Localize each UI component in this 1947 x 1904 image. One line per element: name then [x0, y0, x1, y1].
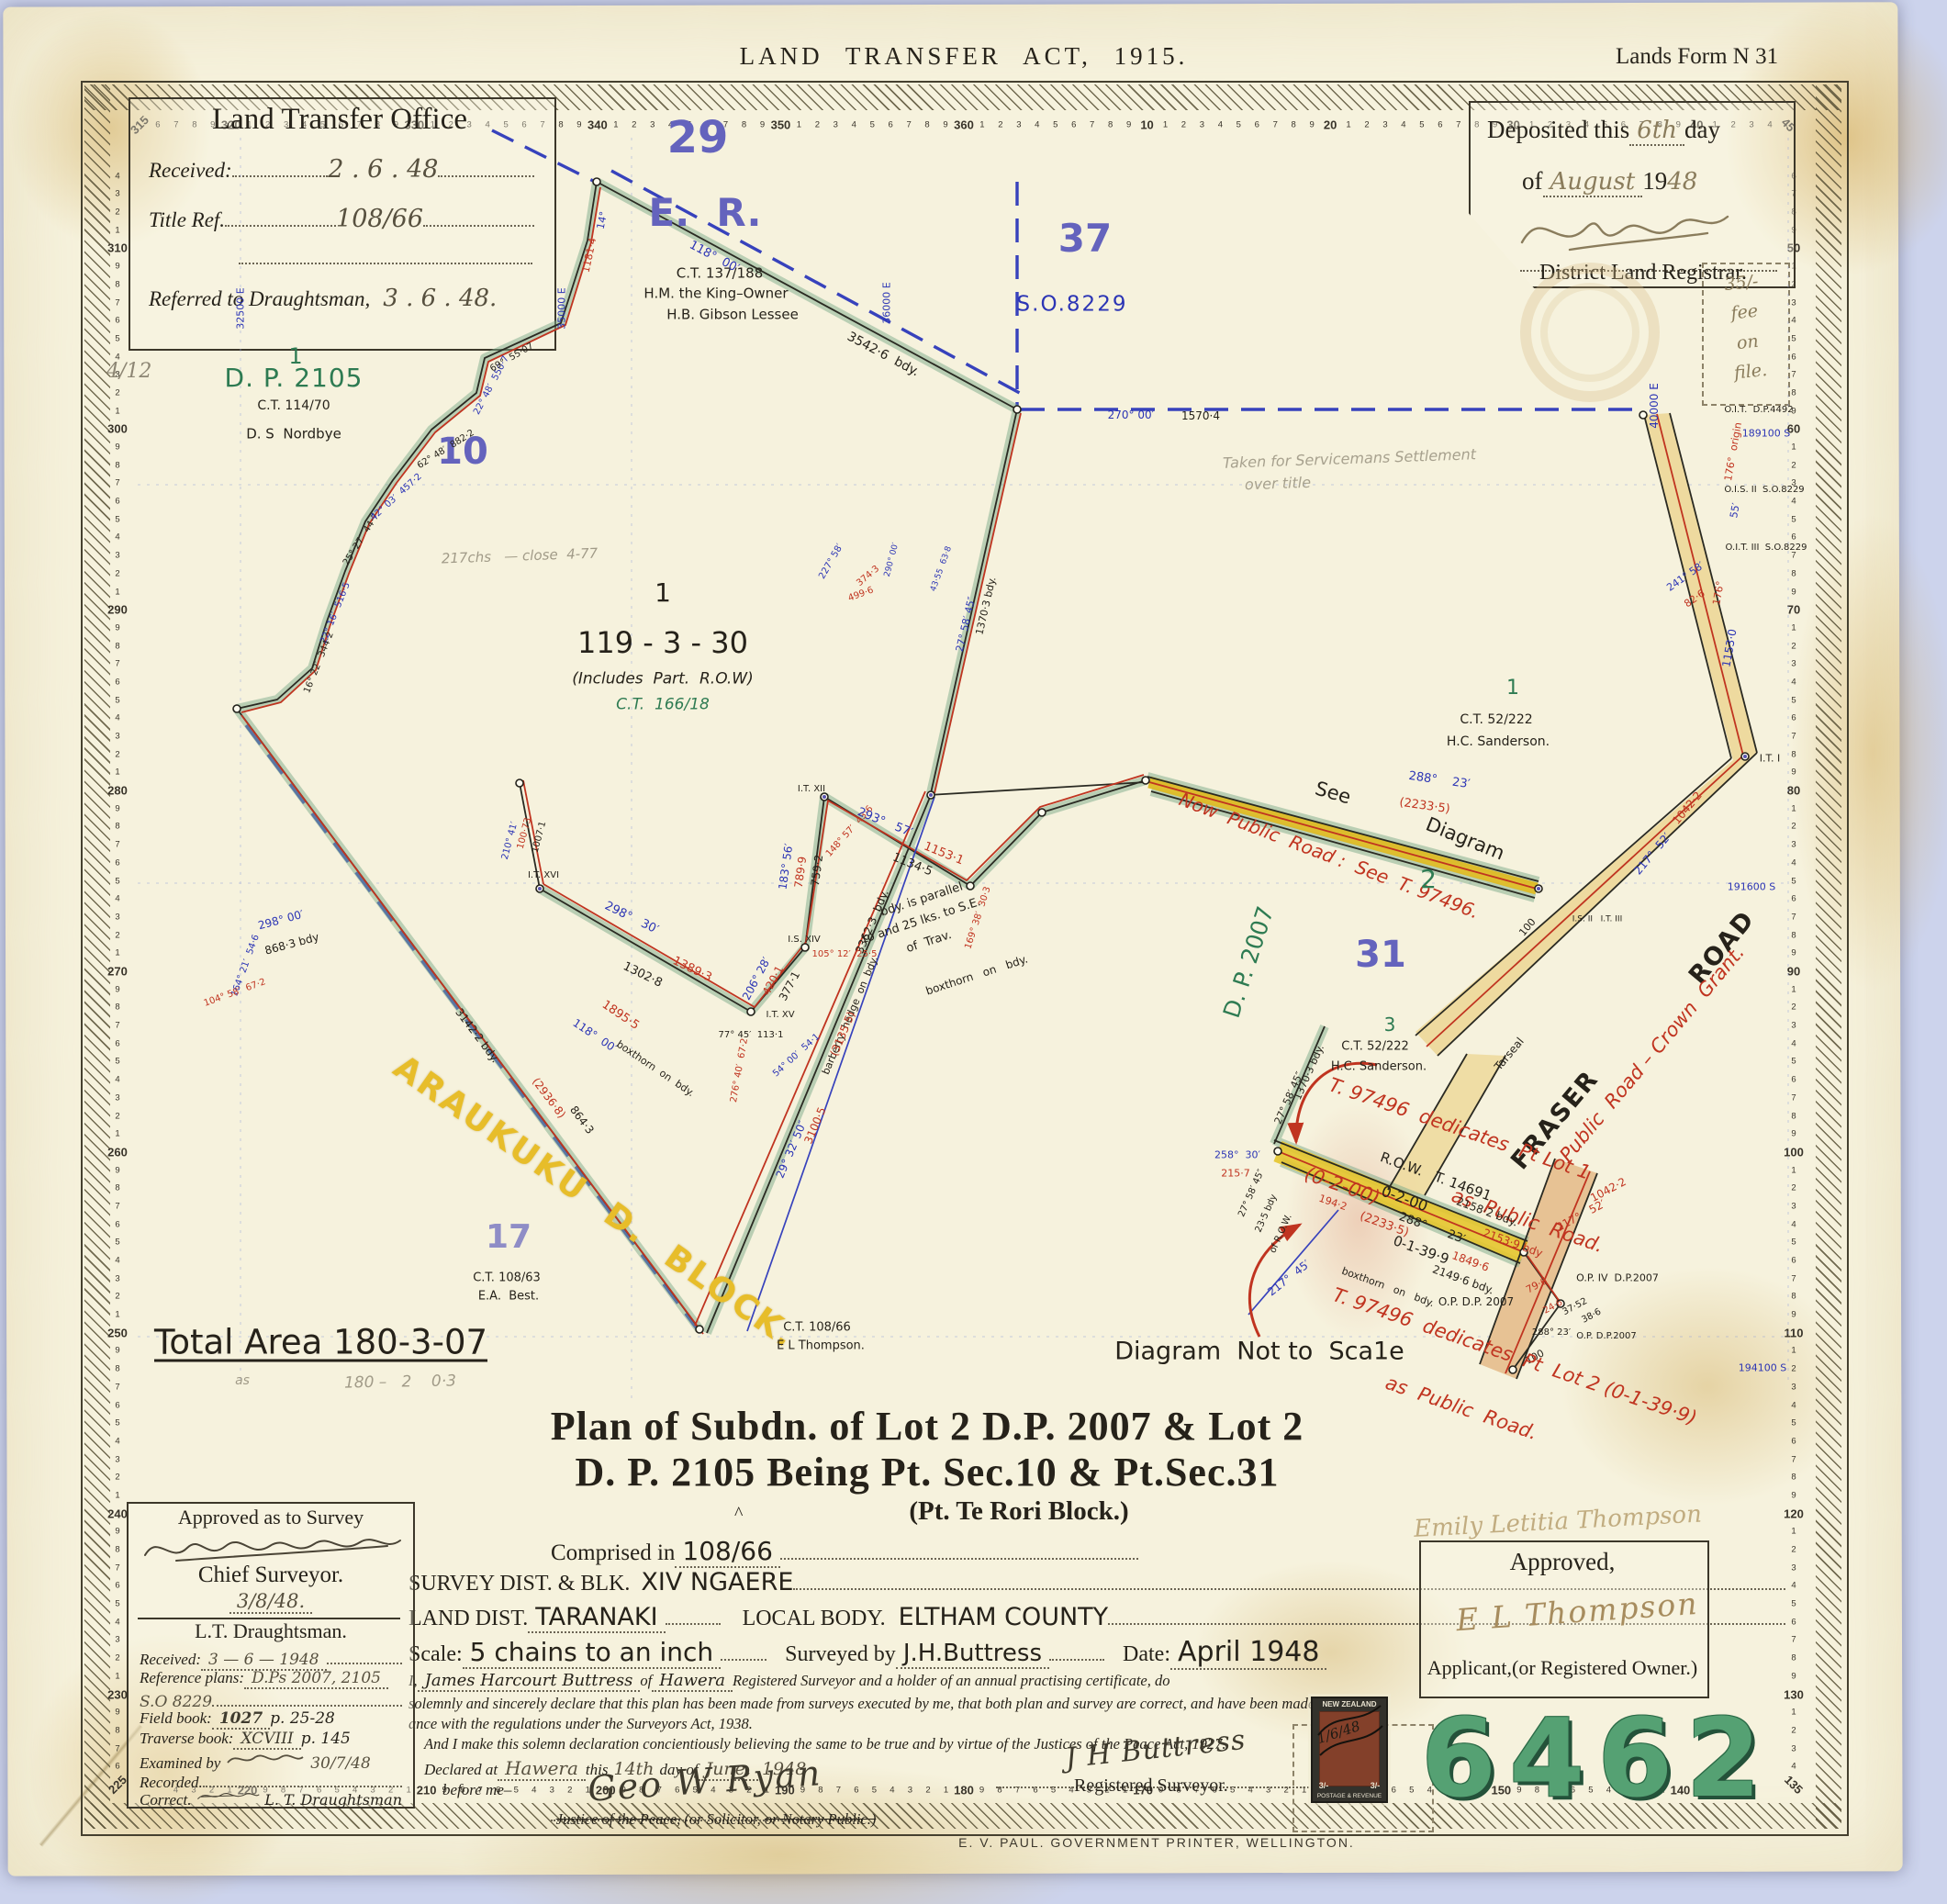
chief-surveyor-title: Chief Surveyor. — [138, 1562, 404, 1588]
comprised-value: 108/66 — [675, 1536, 780, 1568]
label-oit-iii: O.I.T. III S.O.8229 — [1726, 543, 1807, 553]
applicant-label: Applicant,(or Registered Owner.) — [1425, 1656, 1700, 1680]
label-s1-no: 1 — [1506, 678, 1519, 699]
label-isxiv: I.S. XIV — [788, 935, 820, 945]
scale-label: Scale: — [408, 1642, 463, 1667]
local-body-label: LOCAL BODY. — [721, 1607, 886, 1631]
jp-title-a: Justice of the Peace, — [556, 1810, 681, 1829]
label-sec31: 31 — [1355, 936, 1406, 973]
ltd-received: Received: 3 — 6 — 1948 — [140, 1647, 402, 1671]
label-s1-name: H.C. Sanderson. — [1447, 735, 1550, 748]
label-lot29-lessee: H.B. Gibson Lessee — [666, 308, 799, 322]
label-grid-36000e: 36000 E — [882, 282, 892, 323]
land-dist-value: TARANAKI — [528, 1603, 665, 1633]
ltd-correct: Correct. L. T. Draughtsman — [140, 1786, 402, 1809]
decl-post: Registered Surveyor and a holder of an a… — [733, 1672, 1169, 1690]
ltd-field-value: 1027 — [212, 1709, 270, 1730]
label-dp2105-ct: C.T. 114/70 — [257, 399, 330, 412]
label-d2-288-23: 288° 23′ — [1532, 1328, 1571, 1338]
label-pencil-settlement-2: over title — [1245, 476, 1312, 493]
label-ois-ii: O.I.S. II S.O.8229 — [1724, 486, 1804, 495]
label-pencil-total: 180 – 2 0·3 — [344, 1373, 456, 1391]
scanned-survey-plan: 3156789320123456789330123456789340123456… — [0, 0, 1947, 1904]
dotted-line — [327, 1647, 402, 1664]
ltd-ref-label: Reference plans: — [140, 1669, 244, 1687]
label-total-area: Total Area 180-3-07 — [154, 1326, 487, 1360]
chief-surveyor-signature — [140, 1528, 406, 1566]
dotted-line — [203, 1770, 402, 1787]
ltd-ref-plans: Reference plans: D.Ps 2007, 2105 — [140, 1669, 402, 1689]
label-77-45: 77° 45′ 113·1 — [719, 1031, 784, 1040]
label-lot1-incl: (Includes Part. R.O.W) — [572, 672, 753, 688]
label-ct10866: C.T. 108/66 — [783, 1322, 851, 1334]
ltd-correct-label: Correct. — [140, 1791, 192, 1809]
surveyor-title: Registered Surveyor. — [1074, 1775, 1228, 1797]
ltd-traverse-value: XCVIII — [233, 1730, 300, 1750]
declared-label: Declared at — [424, 1761, 498, 1779]
jp-title-c: or Notary Public.) — [765, 1810, 876, 1829]
label-dp2105-owner: D. S Nordbye — [246, 428, 341, 442]
label-sec17-owner: E.A. Best. — [478, 1291, 539, 1303]
ltd-field-book: Field book: 1027 p. 25-28 — [140, 1709, 402, 1730]
label-bdy-270-00: 270° 00′ — [1108, 409, 1155, 420]
label-sec37-so: S.O.8229 — [1017, 295, 1128, 316]
dotted-line — [212, 1689, 402, 1707]
label-s189100: 189100 S — [1742, 429, 1790, 439]
label-oit-dp4492: O.I.T. D.P.4492 — [1724, 406, 1793, 415]
label-diagram-note: Diagram Not to Sca1e — [1114, 1339, 1404, 1364]
ltd-traverse-book: Traverse book: XCVIII p. 145 — [140, 1730, 402, 1750]
ltd-field-label: Field book: — [140, 1709, 212, 1728]
decl-place: Hawera — [652, 1671, 733, 1692]
decl-of: of — [640, 1672, 652, 1690]
ltd-ref-value: D.Ps 2007, 2105 — [244, 1669, 388, 1689]
label-itxii: I.T. XII — [798, 785, 825, 794]
ltd-sign-title: L. T. Draughtsman — [264, 1791, 402, 1809]
printer-imprint: E. V. PAUL. GOVERNMENT PRINTER, WELLINGT… — [826, 1835, 1487, 1850]
approved-label: Approved, — [1428, 1548, 1696, 1576]
ltd-ref-value2: S.O 8229 — [140, 1693, 212, 1711]
land-dist-label: LAND DIST. — [408, 1607, 528, 1631]
label-lot1-ct: C.T. 166/18 — [616, 698, 710, 713]
dotted-line — [721, 1637, 766, 1661]
label-s3-name: H.C. Sanderson. — [1331, 1061, 1427, 1073]
survey-stations — [233, 178, 1749, 1373]
label-lot29-owner: H.M. the King–Owner — [643, 287, 788, 301]
label-s194100: 194100 S — [1739, 1363, 1786, 1373]
plan-number: 6462 — [1421, 1695, 1715, 1821]
label-itxvi: I.T. XVI — [528, 871, 559, 880]
ltd-ref-plans2: S.O 8229 — [140, 1689, 402, 1711]
label-d-258-30: 258° 30′ — [1214, 1150, 1260, 1160]
comprised-label: Comprised in — [551, 1540, 675, 1566]
label-isii-itiii: I.S. II I.T. III — [1572, 916, 1622, 924]
label-lot29-er: E. R. — [649, 194, 762, 232]
lt-draughtsman-title: L.T. Draughtsman. — [138, 1619, 404, 1643]
plan-title-line1: Plan of Subdn. of Lot 2 D.P. 2007 & Lot … — [386, 1403, 1469, 1450]
declaration-line2: solemnly and sincerely declare that this… — [408, 1695, 1391, 1713]
plan-title-line2: D. P. 2105 Being Pt. Sec.10 & Pt.Sec.31 — [386, 1449, 1469, 1495]
label-55: 55′ — [1729, 502, 1741, 519]
examiner-signature — [224, 1750, 307, 1768]
jp-title-b: (or Solicitor, — [684, 1810, 760, 1829]
ltd-traverse-pages: p. 145 — [301, 1730, 351, 1748]
label-d-215-7: 215·7 — [1221, 1169, 1250, 1179]
label-op2007a: O.P. D.P. 2007 — [1438, 1296, 1514, 1307]
label-elthompson-map: E L Thompson. — [777, 1340, 865, 1352]
decl-name: James Harcourt Buttress — [418, 1671, 641, 1692]
ltd-field-pages: p. 25-28 — [270, 1709, 335, 1728]
label-lot29: 29 — [667, 116, 729, 160]
dotted-line — [780, 1535, 1138, 1560]
surveyed-label: Surveyed by — [766, 1642, 896, 1667]
blue-solid-lines — [747, 797, 1338, 1331]
scale-value: 5 chains to an inch — [463, 1637, 722, 1669]
label-sec17: 17 — [486, 1221, 532, 1254]
plan-title-line3: (Pt. Te Rori Block.) — [698, 1496, 1340, 1527]
label-sec17-ct: C.T. 108/63 — [473, 1272, 541, 1284]
jp-title: Justice of the Peace, (or Solicitor, or … — [514, 1810, 918, 1829]
label-bdy-1570: 1570·4 — [1181, 410, 1220, 421]
date-value: April 1948 — [1170, 1636, 1326, 1670]
label-s191600: 191600 S — [1728, 882, 1775, 892]
label-lot1-no: 1 — [655, 580, 671, 606]
local-body-value: ELTHAM COUNTY — [886, 1603, 1109, 1631]
before-me: before me– — [442, 1781, 511, 1799]
label-grid-35000e: 35000 E — [557, 287, 567, 329]
approved-as-to-survey: Approved as to Survey — [138, 1506, 404, 1529]
red-traverse-lines — [241, 187, 1743, 1373]
stamp-pen-strokes — [1313, 1698, 1386, 1801]
label-iti: I.T. I — [1760, 754, 1780, 764]
label-op-iv: O.P. IV D.P.2007 — [1576, 1273, 1659, 1283]
label-lot1-area: 119 - 3 - 30 — [577, 628, 748, 657]
label-grid-32500e: 32500 E — [236, 287, 246, 329]
dotted-line — [666, 1601, 721, 1625]
label-lot29-ct: C.T. 137/188 — [677, 267, 763, 281]
comprised-row: Comprised in 108/66 — [551, 1535, 1138, 1568]
date-label: Date: — [1104, 1642, 1170, 1667]
postage-stamp: NEW ZEALAND POSTAGE & REVENUE 3/- 3/- 1/… — [1311, 1697, 1388, 1803]
label-itxv: I.T. XV — [766, 1011, 794, 1020]
surveyed-value: J.H.Buttress — [896, 1640, 1049, 1669]
declared-place: Hawera — [498, 1757, 586, 1781]
survey-dist-value: XIV NGAERE — [630, 1568, 793, 1596]
survey-dist-label: SURVEY DIST. & BLK. — [408, 1572, 630, 1596]
label-grid-40000e: 40000 E — [1649, 383, 1660, 429]
label-sec37: 37 — [1058, 219, 1112, 258]
label-pencil-as: as — [235, 1374, 250, 1387]
ltd-received-value: 3 — 6 — 1948 — [201, 1651, 327, 1671]
label-op2007b: O.P. D.P.2007 — [1576, 1332, 1636, 1341]
ltd-received-label: Received: — [140, 1651, 201, 1669]
label-s1-ct: C.T. 52/222 — [1460, 713, 1532, 726]
label-lot2-diag: 2 — [1420, 867, 1437, 892]
ltd-traverse-label: Traverse book: — [140, 1730, 233, 1748]
label-s3-ct: C.T. 52/222 — [1341, 1041, 1409, 1053]
chief-surveyor-date: 3/8/48. — [138, 1590, 404, 1614]
dotted-line — [1049, 1637, 1104, 1661]
declaration-line1: I, James Harcourt Buttress of Hawera Reg… — [408, 1671, 1336, 1692]
correct-signature — [196, 1786, 262, 1805]
label-s3-no: 3 — [1384, 1015, 1396, 1034]
label-dp2105: D. P. 2105 — [225, 365, 364, 391]
